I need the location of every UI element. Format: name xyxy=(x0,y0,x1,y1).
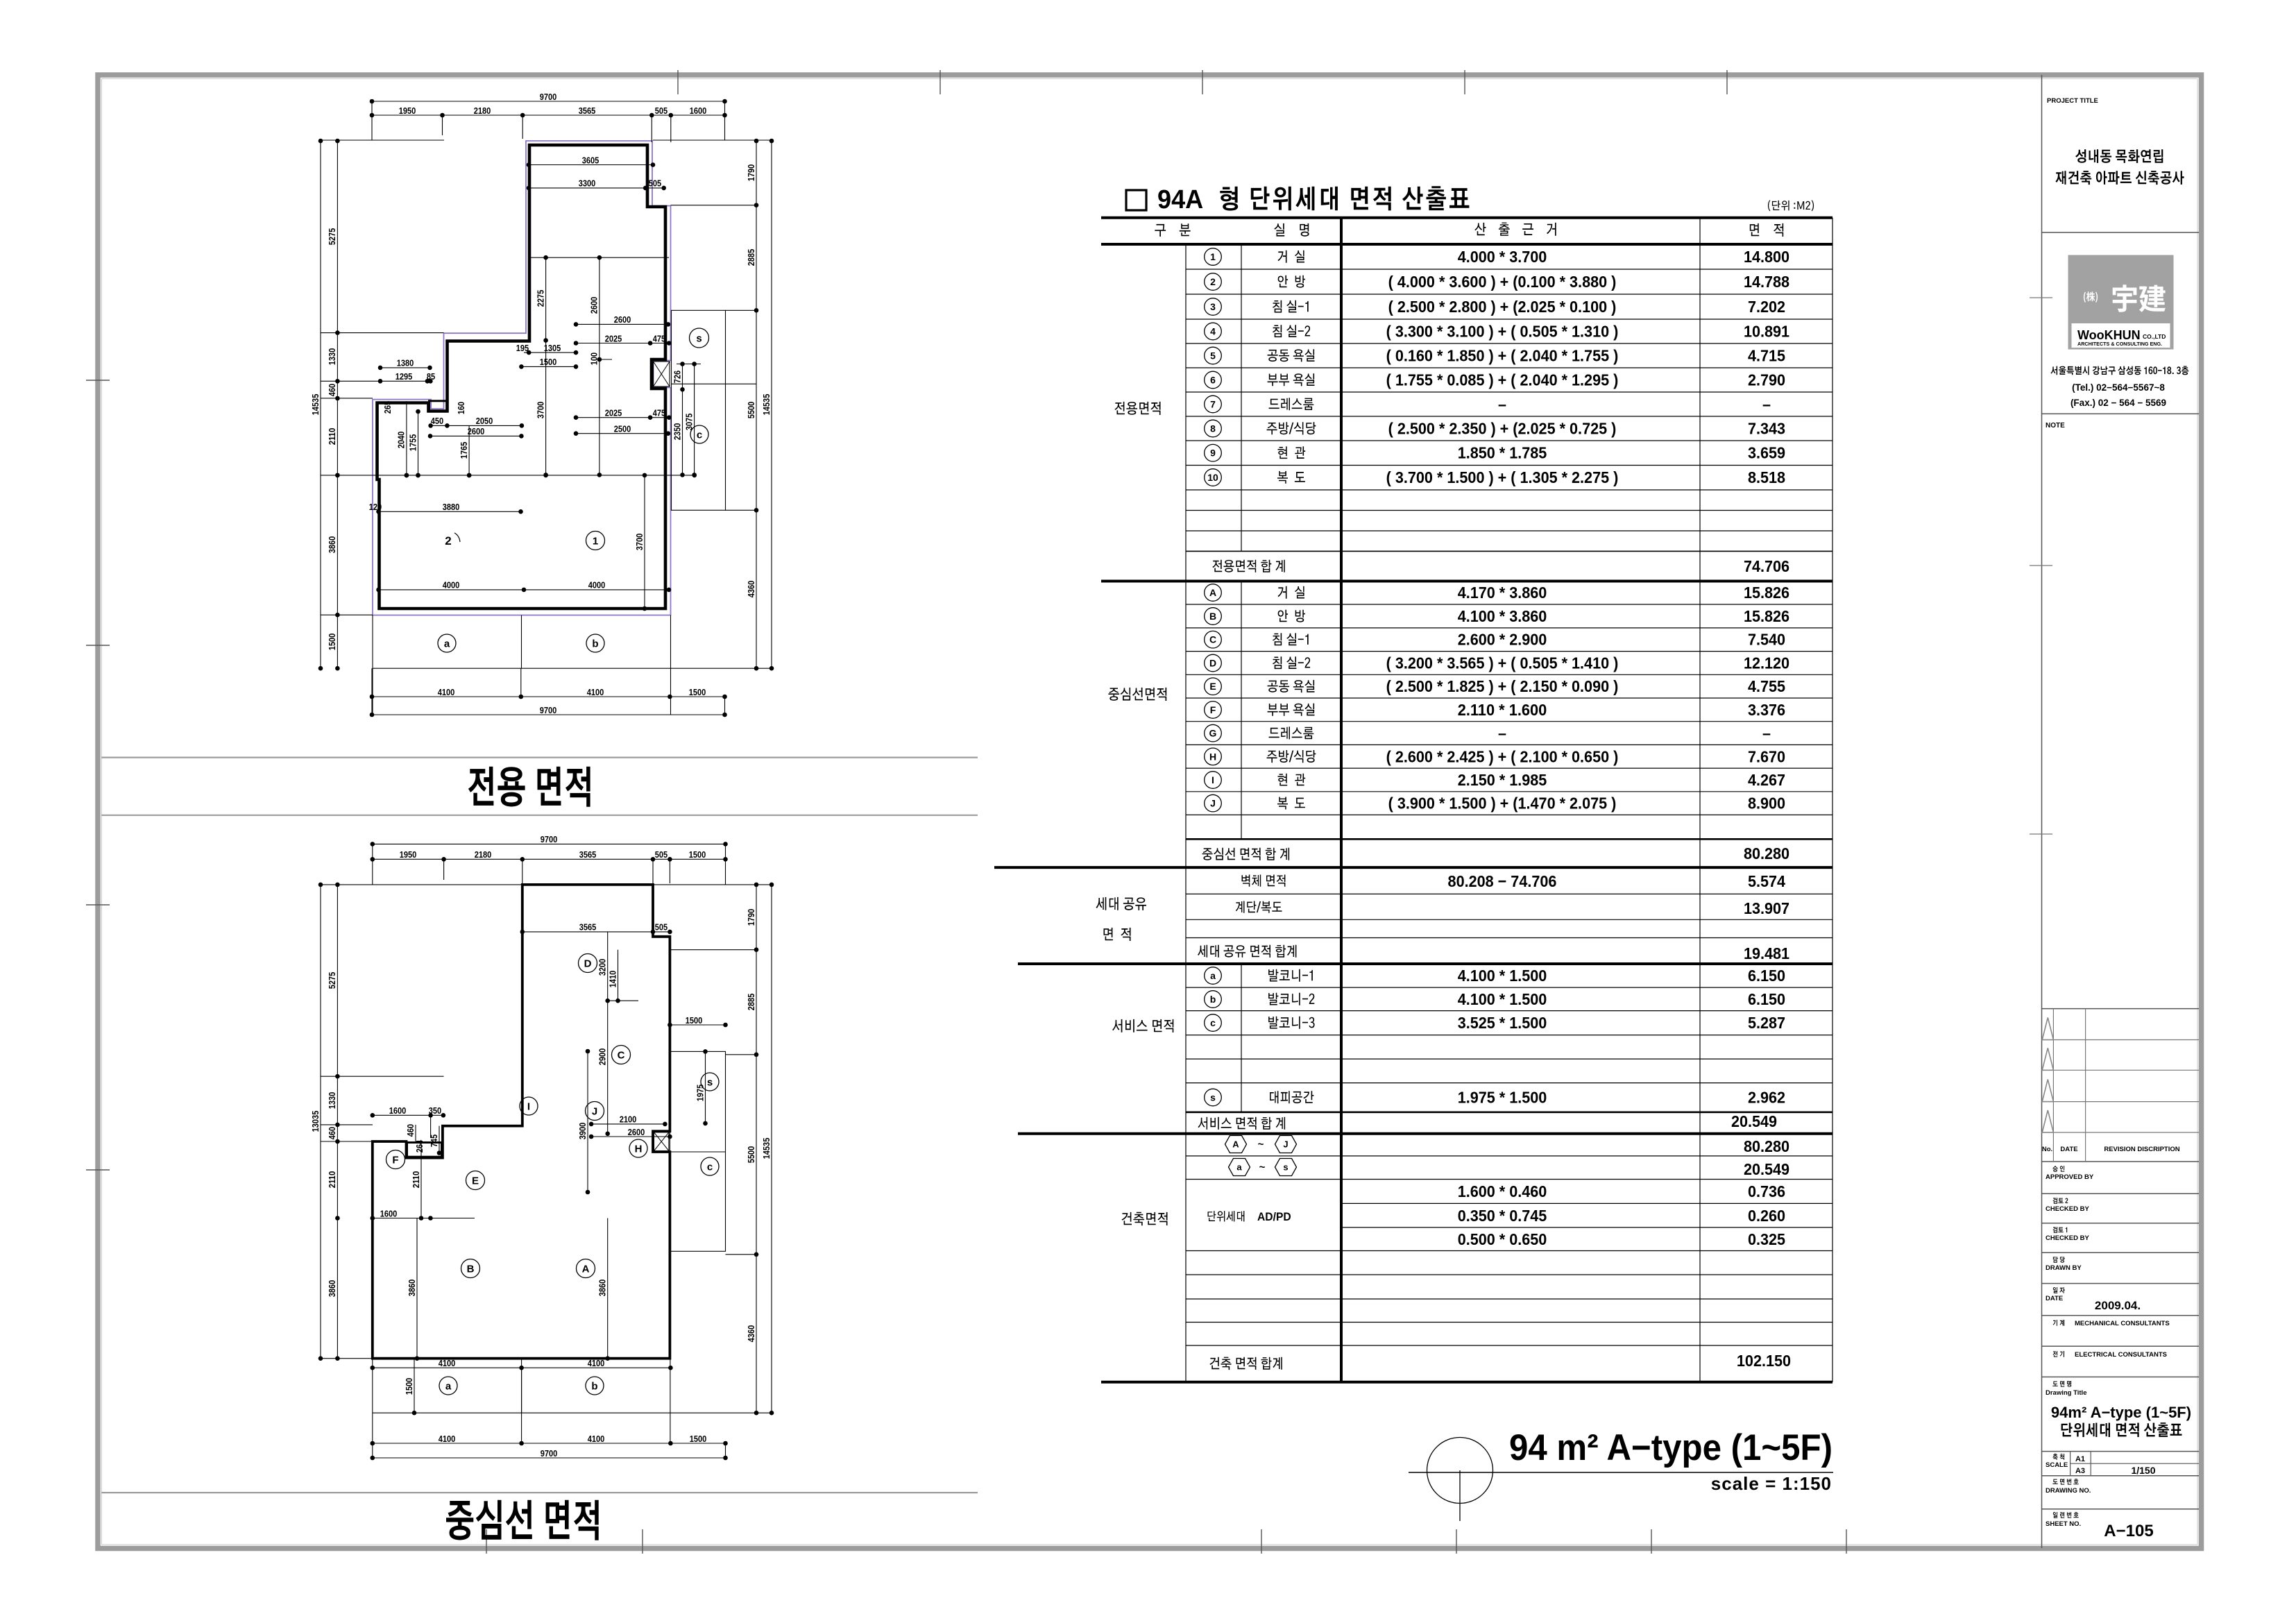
svg-text:ARCHITECTS & CONSULTING ENG.: ARCHITECTS & CONSULTING ENG. xyxy=(2077,341,2162,347)
svg-text:PROJECT TITLE: PROJECT TITLE xyxy=(2047,97,2098,105)
svg-text:1.975 * 1.500: 1.975 * 1.500 xyxy=(1458,1089,1547,1107)
svg-text:REVISION DISCRIPTION: REVISION DISCRIPTION xyxy=(2104,1146,2179,1153)
svg-text:5275: 5275 xyxy=(327,972,337,989)
svg-text:2600: 2600 xyxy=(589,297,599,314)
svg-text:3605: 3605 xyxy=(582,155,599,165)
svg-text:DATE: DATE xyxy=(2060,1146,2077,1153)
svg-text:5.574: 5.574 xyxy=(1748,872,1785,890)
svg-text:94A: 94A xyxy=(1157,185,1203,214)
svg-text:(Fax.) 02 − 564 − 5569: (Fax.) 02 − 564 − 5569 xyxy=(2070,398,2166,408)
svg-text:3.659: 3.659 xyxy=(1748,444,1785,462)
svg-text:0.736: 0.736 xyxy=(1748,1182,1785,1200)
svg-text:3860: 3860 xyxy=(407,1280,417,1297)
svg-text:CHECKED BY: CHECKED BY xyxy=(2046,1205,2089,1213)
svg-text:160: 160 xyxy=(456,402,466,414)
svg-text:(Tel.) 02−564−5567~8: (Tel.) 02−564−5567~8 xyxy=(2072,382,2165,393)
svg-text:E: E xyxy=(472,1175,479,1187)
svg-text:475: 475 xyxy=(653,408,665,418)
svg-text:14535: 14535 xyxy=(761,1138,772,1159)
svg-text:460: 460 xyxy=(327,1127,337,1139)
svg-text:1305: 1305 xyxy=(544,343,561,353)
svg-text:3.525 * 1.500: 3.525 * 1.500 xyxy=(1458,1014,1547,1032)
svg-text:A−105: A−105 xyxy=(2104,1522,2153,1540)
svg-text:745: 745 xyxy=(429,1135,439,1147)
svg-text:9700: 9700 xyxy=(540,705,557,715)
svg-text:2600: 2600 xyxy=(628,1127,645,1137)
svg-text:scale = 1:150: scale = 1:150 xyxy=(1711,1473,1832,1494)
svg-text:14.788: 14.788 xyxy=(1744,273,1789,291)
svg-text:CO.,LTD: CO.,LTD xyxy=(2143,333,2166,340)
svg-text:J: J xyxy=(1210,798,1216,809)
svg-text:4100: 4100 xyxy=(588,1358,605,1368)
svg-text:2180: 2180 xyxy=(474,105,491,116)
svg-text:1790: 1790 xyxy=(746,164,756,182)
svg-text:2.110 * 1.600: 2.110 * 1.600 xyxy=(1458,701,1547,719)
svg-text:505: 505 xyxy=(655,849,667,860)
svg-text:2.600 * 2.900: 2.600 * 2.900 xyxy=(1458,631,1547,649)
svg-text:350: 350 xyxy=(429,1105,441,1116)
svg-text:1600: 1600 xyxy=(690,105,707,116)
svg-text:a: a xyxy=(1236,1162,1242,1173)
svg-text:5500: 5500 xyxy=(746,402,756,419)
svg-text:475: 475 xyxy=(653,333,665,343)
svg-text:6.150: 6.150 xyxy=(1748,967,1785,985)
svg-text:85: 85 xyxy=(427,371,435,382)
svg-text:s: s xyxy=(1210,1092,1216,1103)
svg-text:D: D xyxy=(1209,658,1216,669)
svg-text:ELECTRICAL CONSULTANTS: ELECTRICAL CONSULTANTS xyxy=(2075,1351,2167,1359)
svg-text:6: 6 xyxy=(1210,375,1216,386)
svg-text:2050: 2050 xyxy=(476,416,493,426)
svg-text:1500: 1500 xyxy=(540,357,557,367)
svg-text:13.907: 13.907 xyxy=(1744,899,1789,917)
svg-text:J: J xyxy=(592,1105,597,1117)
svg-text:2: 2 xyxy=(1210,276,1216,287)
svg-text:4100: 4100 xyxy=(587,687,604,697)
svg-text:( 2.500 * 2.350 ) + (2.025 * 0: ( 2.500 * 2.350 ) + (2.025 * 0.725 ) xyxy=(1388,420,1617,438)
svg-text:1.600 * 0.460: 1.600 * 0.460 xyxy=(1458,1182,1547,1200)
svg-text:10.891: 10.891 xyxy=(1744,323,1789,341)
svg-text:4360: 4360 xyxy=(746,1325,756,1343)
svg-text:G: G xyxy=(1209,728,1217,739)
svg-text:0.350 * 0.745: 0.350 * 0.745 xyxy=(1458,1207,1547,1225)
svg-text:1500: 1500 xyxy=(686,1015,703,1026)
svg-text:1500: 1500 xyxy=(690,1434,707,1444)
svg-text:94m² A−type (1~5F): 94m² A−type (1~5F) xyxy=(2051,1404,2191,1421)
svg-text:( 2.600 * 2.425 ) + ( 2.100 *: ( 2.600 * 2.425 ) + ( 2.100 * 0.650 ) xyxy=(1386,747,1619,765)
svg-text:2600: 2600 xyxy=(468,426,485,436)
svg-text:15.826: 15.826 xyxy=(1744,607,1789,625)
svg-text:3.376: 3.376 xyxy=(1748,701,1785,719)
svg-text:2100: 2100 xyxy=(620,1114,637,1125)
svg-text:2885: 2885 xyxy=(746,994,756,1011)
svg-text:3565: 3565 xyxy=(579,849,597,860)
svg-text:3300: 3300 xyxy=(579,178,596,189)
svg-text:1755: 1755 xyxy=(407,434,418,452)
svg-text:–: – xyxy=(1498,724,1506,742)
svg-text:2: 2 xyxy=(445,534,451,547)
svg-text:7.540: 7.540 xyxy=(1748,631,1785,649)
svg-text:195: 195 xyxy=(516,343,529,353)
svg-text:1330: 1330 xyxy=(327,348,337,366)
svg-text:3860: 3860 xyxy=(327,536,337,554)
svg-text:~: ~ xyxy=(1258,1139,1264,1150)
svg-text:15.826: 15.826 xyxy=(1744,584,1789,602)
svg-text:NOTE: NOTE xyxy=(2046,422,2065,430)
svg-text:460: 460 xyxy=(327,384,337,396)
svg-text:80.208 − 74.706: 80.208 − 74.706 xyxy=(1448,872,1557,890)
svg-text:3860: 3860 xyxy=(597,1280,608,1297)
svg-text:Drawing Title: Drawing Title xyxy=(2046,1389,2086,1397)
svg-text:APPROVED BY: APPROVED BY xyxy=(2046,1173,2094,1181)
svg-text:b: b xyxy=(1210,994,1216,1005)
svg-text:E: E xyxy=(1209,681,1216,692)
svg-text:20.549: 20.549 xyxy=(1731,1112,1777,1130)
svg-text:4.170 * 3.860: 4.170 * 3.860 xyxy=(1458,584,1547,602)
svg-text:A1: A1 xyxy=(2075,1455,2085,1463)
svg-text:a: a xyxy=(1210,970,1216,981)
svg-text:2600: 2600 xyxy=(614,314,631,325)
svg-text:9700: 9700 xyxy=(541,834,558,844)
svg-text:2110: 2110 xyxy=(327,428,337,445)
svg-text:2040: 2040 xyxy=(396,432,407,449)
svg-text:120: 120 xyxy=(369,502,382,512)
svg-text:94 m² A−type (1~5F): 94 m² A−type (1~5F) xyxy=(1509,1427,1832,1468)
svg-text:14535: 14535 xyxy=(310,394,321,416)
svg-text:8: 8 xyxy=(1210,423,1216,434)
svg-text:AD/PD: AD/PD xyxy=(1257,1210,1291,1223)
svg-text:4.755: 4.755 xyxy=(1748,677,1785,695)
svg-text:SCALE: SCALE xyxy=(2046,1461,2068,1469)
svg-text:0.325: 0.325 xyxy=(1748,1230,1785,1248)
svg-text:265: 265 xyxy=(382,401,393,414)
svg-text:WooKHUN: WooKHUN xyxy=(2077,328,2141,342)
svg-text:A: A xyxy=(1209,587,1216,598)
svg-text:0.500 * 0.650: 0.500 * 0.650 xyxy=(1458,1230,1547,1248)
svg-text:a: a xyxy=(444,638,450,649)
svg-text:B: B xyxy=(1209,611,1216,622)
svg-text:2110: 2110 xyxy=(327,1171,337,1189)
svg-text:1600: 1600 xyxy=(380,1208,398,1218)
svg-text:4100: 4100 xyxy=(438,687,455,697)
svg-text:s: s xyxy=(707,1076,713,1088)
svg-text:I: I xyxy=(1211,774,1214,785)
svg-text:No.: No. xyxy=(2042,1146,2052,1153)
svg-text:( 2.500 * 1.825 ) + ( 2.150 *: ( 2.500 * 1.825 ) + ( 2.150 * 0.090 ) xyxy=(1386,677,1619,695)
svg-text:7.343: 7.343 xyxy=(1748,420,1785,438)
svg-text:c: c xyxy=(1210,1017,1216,1028)
svg-text:H: H xyxy=(635,1143,643,1155)
svg-text:102.150: 102.150 xyxy=(1737,1352,1791,1370)
svg-text:2009.04.: 2009.04. xyxy=(2095,1299,2141,1312)
svg-text:3860: 3860 xyxy=(327,1280,337,1298)
svg-text:0.260: 0.260 xyxy=(1748,1207,1785,1225)
svg-text:4000: 4000 xyxy=(588,580,606,590)
svg-text:9700: 9700 xyxy=(540,92,557,102)
svg-text:4100: 4100 xyxy=(439,1358,456,1368)
svg-text:5.287: 5.287 xyxy=(1748,1014,1785,1032)
svg-text:–: – xyxy=(1762,724,1771,742)
svg-text:MECHANICAL CONSULTANTS: MECHANICAL CONSULTANTS xyxy=(2075,1320,2170,1327)
svg-text:B: B xyxy=(467,1263,475,1275)
svg-text:726: 726 xyxy=(672,371,682,383)
svg-text:s: s xyxy=(696,332,701,344)
svg-text:9700: 9700 xyxy=(541,1448,558,1459)
svg-text:80.280: 80.280 xyxy=(1744,1137,1789,1155)
svg-text:14535: 14535 xyxy=(761,394,772,416)
svg-text:~: ~ xyxy=(1259,1162,1266,1173)
svg-text:1950: 1950 xyxy=(399,105,416,116)
svg-text:C: C xyxy=(618,1049,625,1061)
svg-text:4100: 4100 xyxy=(588,1434,605,1444)
svg-text:2900: 2900 xyxy=(597,1048,608,1066)
svg-text:1790: 1790 xyxy=(746,909,756,926)
svg-text:74.706: 74.706 xyxy=(1744,557,1789,575)
svg-text:1.850 * 1.785: 1.850 * 1.785 xyxy=(1458,444,1547,462)
svg-text:100: 100 xyxy=(589,352,599,365)
svg-text:4000: 4000 xyxy=(443,580,460,590)
svg-text:1/150: 1/150 xyxy=(2131,1465,2155,1476)
svg-text:F: F xyxy=(392,1154,398,1166)
svg-text:( 2.500 * 2.800 ) + (2.025 * 0: ( 2.500 * 2.800 ) + (2.025 * 0.100 ) xyxy=(1388,298,1617,316)
svg-text:3200: 3200 xyxy=(597,959,608,976)
svg-text:A: A xyxy=(582,1263,590,1275)
svg-text:505: 505 xyxy=(655,922,667,933)
svg-text:5275: 5275 xyxy=(327,228,337,246)
svg-text:CHECKED BY: CHECKED BY xyxy=(2046,1234,2089,1242)
svg-text:10: 10 xyxy=(1207,472,1218,483)
svg-text:1500: 1500 xyxy=(404,1378,414,1395)
svg-text:80.280: 80.280 xyxy=(1744,844,1789,863)
svg-text:2500: 2500 xyxy=(614,424,631,434)
svg-text:2885: 2885 xyxy=(746,249,756,266)
svg-text:13035: 13035 xyxy=(310,1111,321,1132)
svg-text:3900: 3900 xyxy=(577,1123,588,1140)
svg-text:DRAWN BY: DRAWN BY xyxy=(2046,1264,2082,1272)
svg-text:450: 450 xyxy=(431,416,443,426)
svg-text:1975: 1975 xyxy=(695,1085,705,1102)
svg-text:( 3.300 * 3.100 ) + ( 0.505 *: ( 3.300 * 3.100 ) + ( 0.505 * 1.310 ) xyxy=(1386,323,1619,341)
svg-text:( 3.900 * 1.500 ) + (1.470 * 2: ( 3.900 * 1.500 ) + (1.470 * 2.075 ) xyxy=(1388,794,1617,813)
svg-text:3: 3 xyxy=(1210,301,1216,312)
svg-text:J: J xyxy=(1283,1139,1288,1150)
svg-text:7.202: 7.202 xyxy=(1748,298,1785,316)
svg-text:1500: 1500 xyxy=(689,849,706,860)
svg-text:–: – xyxy=(1498,396,1506,414)
svg-text:6.150: 6.150 xyxy=(1748,990,1785,1008)
svg-text:2110: 2110 xyxy=(411,1171,421,1189)
svg-text:F: F xyxy=(1210,704,1216,715)
svg-text:1765: 1765 xyxy=(459,442,469,459)
svg-text:( 4.000 * 3.600 ) + (0.100 * 3: ( 4.000 * 3.600 ) + (0.100 * 3.880 ) xyxy=(1388,273,1617,291)
svg-text:12.120: 12.120 xyxy=(1744,654,1789,672)
svg-text:4.100 * 1.500: 4.100 * 1.500 xyxy=(1458,967,1547,985)
svg-text:1295: 1295 xyxy=(396,371,413,382)
svg-text:1600: 1600 xyxy=(389,1105,407,1116)
svg-text:460: 460 xyxy=(405,1124,416,1137)
svg-text:2275: 2275 xyxy=(535,290,545,307)
svg-text:2350: 2350 xyxy=(672,423,682,441)
svg-text:5: 5 xyxy=(1210,350,1216,362)
svg-text:8.518: 8.518 xyxy=(1748,468,1785,486)
svg-text:5500: 5500 xyxy=(746,1146,756,1164)
svg-text:2180: 2180 xyxy=(475,849,492,860)
svg-text:c: c xyxy=(697,429,702,441)
svg-text:20.549: 20.549 xyxy=(1744,1160,1789,1178)
svg-text:a: a xyxy=(445,1380,452,1392)
svg-text:1: 1 xyxy=(1210,251,1216,262)
svg-text:( 3.200 * 3.565 ) + ( 0.505 *: ( 3.200 * 3.565 ) + ( 0.505 * 1.410 ) xyxy=(1386,654,1619,672)
svg-text:C: C xyxy=(1209,634,1216,645)
svg-text:3565: 3565 xyxy=(579,105,596,116)
svg-text:19.481: 19.481 xyxy=(1744,944,1789,962)
svg-text:1: 1 xyxy=(593,535,598,547)
svg-text:DRAWING NO.: DRAWING NO. xyxy=(2046,1487,2091,1495)
svg-text:1500: 1500 xyxy=(689,687,706,697)
svg-text:1380: 1380 xyxy=(397,358,414,368)
svg-text:D: D xyxy=(584,958,592,969)
svg-text:A3: A3 xyxy=(2075,1467,2085,1475)
svg-text:4360: 4360 xyxy=(746,581,756,598)
svg-text:2.150 * 1.985: 2.150 * 1.985 xyxy=(1458,771,1547,789)
svg-text:I: I xyxy=(527,1101,530,1112)
svg-text:s: s xyxy=(1283,1162,1288,1173)
svg-text:3700: 3700 xyxy=(634,534,645,551)
svg-text:DATE: DATE xyxy=(2046,1295,2063,1302)
svg-text:4: 4 xyxy=(1210,326,1216,337)
svg-text:4.000 * 3.700: 4.000 * 3.700 xyxy=(1458,248,1547,266)
svg-text:4.267: 4.267 xyxy=(1748,771,1785,789)
svg-text:c: c xyxy=(707,1161,713,1173)
svg-text:( 3.700 * 1.500 ) + ( 1.305 *: ( 3.700 * 1.500 ) + ( 1.305 * 2.275 ) xyxy=(1386,468,1619,486)
svg-text:505: 505 xyxy=(655,105,667,116)
svg-text:2.962: 2.962 xyxy=(1748,1089,1785,1107)
svg-text:1410: 1410 xyxy=(607,971,618,988)
svg-text:7: 7 xyxy=(1210,399,1216,410)
svg-text:2.790: 2.790 xyxy=(1748,371,1785,389)
svg-text:( 0.160 * 1.850 ) + ( 2.040 *: ( 0.160 * 1.850 ) + ( 2.040 * 1.755 ) xyxy=(1386,347,1619,365)
svg-text:( 1.755 * 0.085 ) + ( 2.040 *: ( 1.755 * 0.085 ) + ( 2.040 * 1.295 ) xyxy=(1386,371,1619,389)
svg-text:4.100 * 3.860: 4.100 * 3.860 xyxy=(1458,607,1547,625)
svg-text:b: b xyxy=(591,1380,597,1392)
svg-text:3565: 3565 xyxy=(579,922,597,933)
svg-text:4.715: 4.715 xyxy=(1748,347,1785,365)
svg-text:H: H xyxy=(1209,751,1216,762)
svg-text:b: b xyxy=(592,638,598,649)
svg-text:3700: 3700 xyxy=(535,402,545,419)
svg-text:2025: 2025 xyxy=(605,333,622,343)
svg-text:–: – xyxy=(1762,396,1771,414)
svg-text:7.670: 7.670 xyxy=(1748,747,1785,765)
svg-text:505: 505 xyxy=(649,178,661,189)
svg-text:4100: 4100 xyxy=(439,1434,456,1444)
svg-text:8.900: 8.900 xyxy=(1748,794,1785,813)
svg-text:264: 264 xyxy=(414,1139,425,1153)
svg-text:A: A xyxy=(1232,1139,1239,1150)
svg-text:SHEET NO.: SHEET NO. xyxy=(2046,1520,2081,1528)
svg-text:14.800: 14.800 xyxy=(1744,248,1789,266)
svg-text:3880: 3880 xyxy=(443,502,460,512)
svg-text:2025: 2025 xyxy=(605,408,622,418)
svg-text:1500: 1500 xyxy=(327,634,337,651)
svg-text:1950: 1950 xyxy=(400,849,417,860)
svg-text:4.100 * 1.500: 4.100 * 1.500 xyxy=(1458,990,1547,1008)
svg-text:9: 9 xyxy=(1210,448,1216,459)
svg-text:1330: 1330 xyxy=(327,1092,337,1110)
